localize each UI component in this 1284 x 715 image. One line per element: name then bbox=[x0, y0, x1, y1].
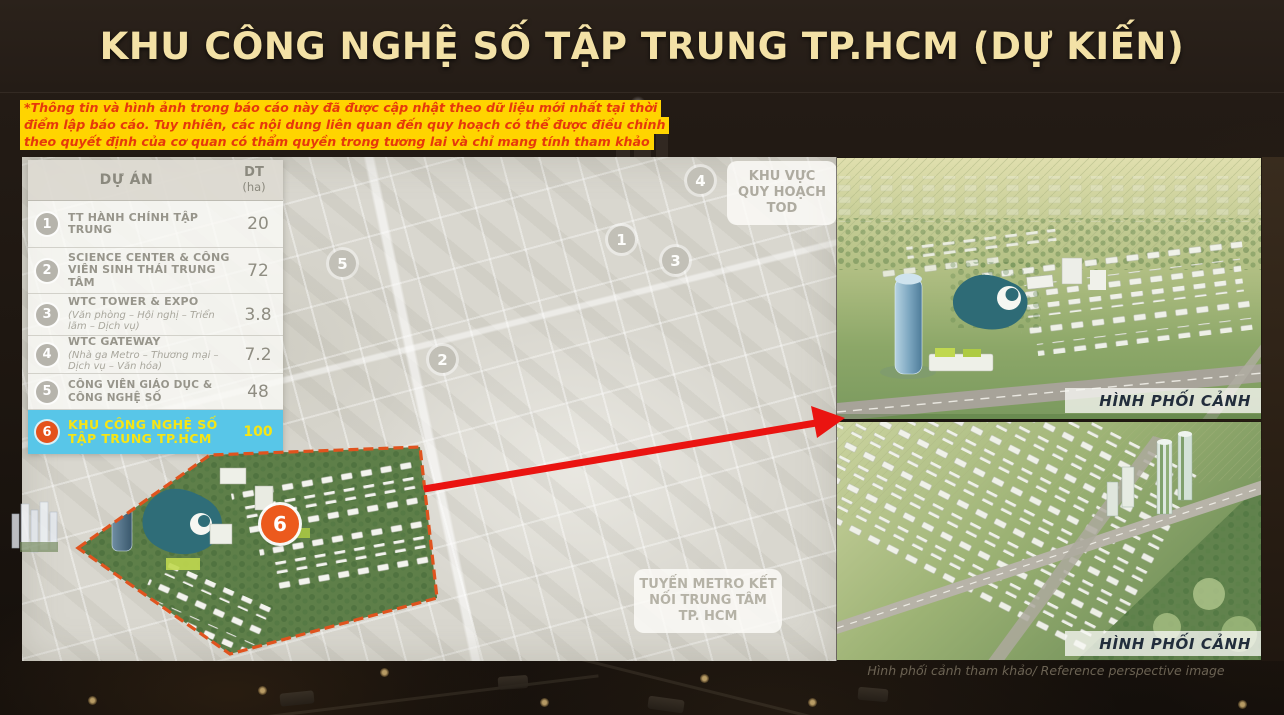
table-row: 2 SCIENCE CENTER & CÔNG VIÊN SINH THÁI T… bbox=[28, 248, 283, 294]
project-name: CÔNG VIÊN GIÁO DỤC & CÔNG NGHỆ SỐ bbox=[68, 379, 230, 404]
render-label: HÌNH PHỐI CẢNH bbox=[1065, 388, 1261, 413]
disclaimer-line: điểm lập báo cáo. Tuy nhiên, các nội dun… bbox=[20, 117, 669, 134]
row-number-badge: 3 bbox=[36, 304, 58, 326]
tod-zone-label: KHU VỰC QUY HOẠCH TOD bbox=[727, 161, 837, 225]
map-marker-3: 3 bbox=[662, 247, 689, 274]
table-row: 5 CÔNG VIÊN GIÁO DỤC & CÔNG NGHỆ SỐ 48 bbox=[28, 374, 283, 410]
background-trees-strip bbox=[1262, 157, 1284, 661]
table-header: DỰ ÁN DT (ha) bbox=[28, 160, 283, 201]
header-area-unit: (ha) bbox=[225, 180, 283, 194]
project-area: 3.8 bbox=[233, 305, 283, 325]
city-sketch bbox=[8, 492, 66, 556]
row-number-badge: 4 bbox=[36, 344, 58, 366]
project-name: SCIENCE CENTER & CÔNG VIÊN SINH THÁI TRU… bbox=[68, 252, 230, 290]
map-marker-4: 4 bbox=[687, 167, 714, 194]
map-marker-1: 1 bbox=[608, 226, 635, 253]
project-name: WTC TOWER & EXPO bbox=[68, 296, 230, 309]
reference-caption: Hình phối cảnh tham khảo/ Reference pers… bbox=[846, 663, 1246, 678]
disclaimer-line: *Thông tin và hình ảnh trong báo cáo này… bbox=[20, 100, 661, 117]
slide: KHU CÔNG NGHỆ SỐ TẬP TRUNG TP.HCM (DỰ KI… bbox=[0, 0, 1284, 715]
title-band: KHU CÔNG NGHỆ SỐ TẬP TRUNG TP.HCM (DỰ KI… bbox=[0, 0, 1284, 93]
project-name: WTC GATEWAY bbox=[68, 336, 230, 349]
row-number-badge: 1 bbox=[36, 213, 58, 235]
map-marker-2: 2 bbox=[429, 346, 456, 373]
project-area: 7.2 bbox=[233, 345, 283, 365]
perspective-render-top: HÌNH PHỐI CẢNH bbox=[836, 157, 1262, 420]
aerial-render-image bbox=[837, 422, 1262, 661]
map-marker-5: 5 bbox=[329, 250, 356, 277]
table-row: 1 TT HÀNH CHÍNH TẬP TRUNG 20 bbox=[28, 201, 283, 248]
row-number-badge: 2 bbox=[36, 260, 58, 282]
aerial-render-image bbox=[837, 158, 1262, 420]
marker-number: 5 bbox=[337, 255, 347, 273]
project-area: 48 bbox=[233, 382, 283, 402]
site-marker-6: 6 bbox=[261, 505, 299, 543]
marker-number: 3 bbox=[670, 252, 680, 270]
header-area-label: DT bbox=[244, 165, 264, 180]
disclaimer-line: theo quyết định của cơ quan có thẩm quyề… bbox=[20, 134, 654, 151]
header-project: DỰ ÁN bbox=[28, 172, 225, 188]
project-area: 72 bbox=[233, 261, 283, 281]
project-subtitle: (Văn phòng – Hội nghị – Triển lãm – Dịch… bbox=[68, 310, 230, 333]
project-name: TT HÀNH CHÍNH TẬP TRUNG bbox=[68, 212, 230, 237]
metro-line-label: TUYẾN METRO KẾT NỐI TRUNG TÂM TP. HCM bbox=[634, 569, 782, 633]
marker-number: 4 bbox=[695, 172, 705, 190]
table-row: 3 WTC TOWER & EXPO(Văn phòng – Hội nghị … bbox=[28, 294, 283, 336]
project-area: 20 bbox=[233, 214, 283, 234]
row-number-badge: 5 bbox=[36, 381, 58, 403]
marker-number: 2 bbox=[437, 351, 447, 369]
perspective-render-bottom: HÌNH PHỐI CẢNH bbox=[836, 421, 1262, 661]
row-number-badge: 6 bbox=[36, 421, 58, 443]
header-area: DT (ha) bbox=[225, 166, 283, 194]
project-subtitle: (Nhà ga Metro – Thương mại – Dịch vụ – V… bbox=[68, 350, 230, 373]
project-table: DỰ ÁN DT (ha) 1 TT HÀNH CHÍNH TẬP TRUNG … bbox=[28, 160, 283, 454]
table-row: 4 WTC GATEWAY(Nhà ga Metro – Thương mại … bbox=[28, 336, 283, 374]
page-title: KHU CÔNG NGHỆ SỐ TẬP TRUNG TP.HCM (DỰ KI… bbox=[100, 25, 1185, 68]
marker-number: 1 bbox=[616, 231, 626, 249]
site-plan-rendering bbox=[70, 428, 445, 662]
disclaimer-note: *Thông tin và hình ảnh trong báo cáo này… bbox=[20, 100, 669, 150]
render-label: HÌNH PHỐI CẢNH bbox=[1065, 631, 1261, 656]
